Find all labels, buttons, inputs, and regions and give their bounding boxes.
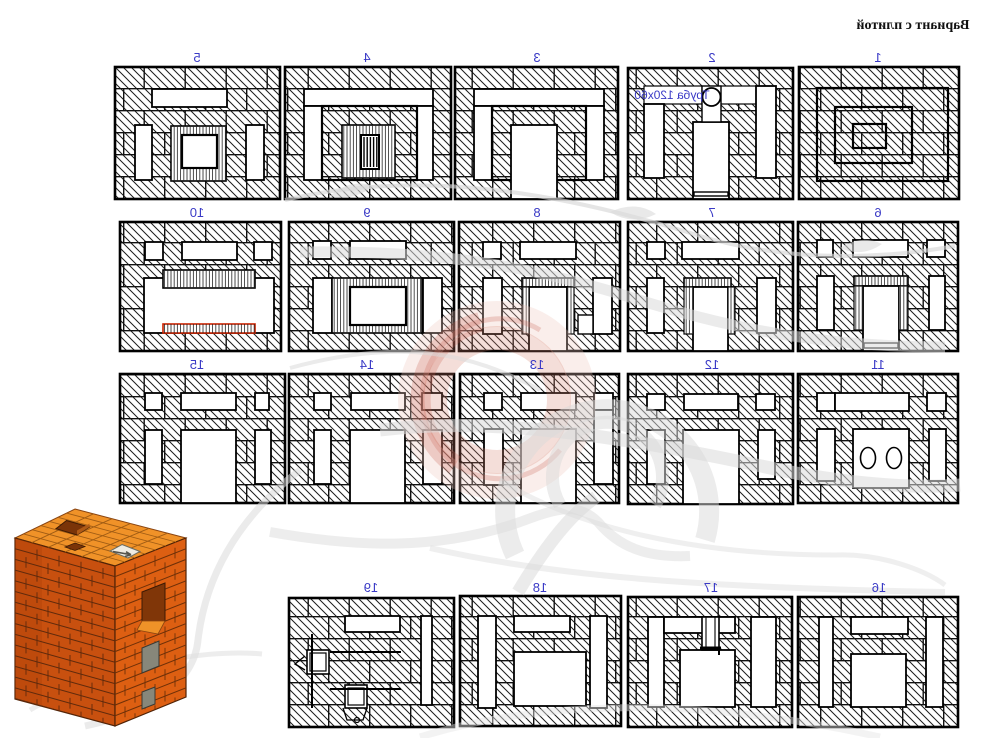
svg-text:12: 12 xyxy=(705,357,719,372)
svg-text:Вариант с плитой: Вариант с плитой xyxy=(856,18,969,33)
svg-text:16: 16 xyxy=(872,580,886,595)
svg-text:11: 11 xyxy=(871,357,885,372)
svg-text:15: 15 xyxy=(190,357,204,372)
svg-text:10: 10 xyxy=(190,205,204,220)
svg-text:17: 17 xyxy=(704,580,718,595)
svg-text:1: 1 xyxy=(874,50,881,65)
svg-text:6: 6 xyxy=(874,205,881,220)
svg-text:14: 14 xyxy=(360,357,374,372)
svg-text:8: 8 xyxy=(533,205,540,220)
svg-text:3: 3 xyxy=(533,50,540,65)
svg-text:2: 2 xyxy=(708,50,715,65)
svg-text:4: 4 xyxy=(363,50,370,65)
svg-text:Труба 120х60: Труба 120х60 xyxy=(634,88,710,102)
svg-text:5: 5 xyxy=(193,50,200,65)
svg-text:19: 19 xyxy=(364,580,378,595)
svg-text:7: 7 xyxy=(708,205,715,220)
svg-text:18: 18 xyxy=(533,580,547,595)
svg-text:13: 13 xyxy=(530,357,544,372)
svg-text:9: 9 xyxy=(363,205,370,220)
